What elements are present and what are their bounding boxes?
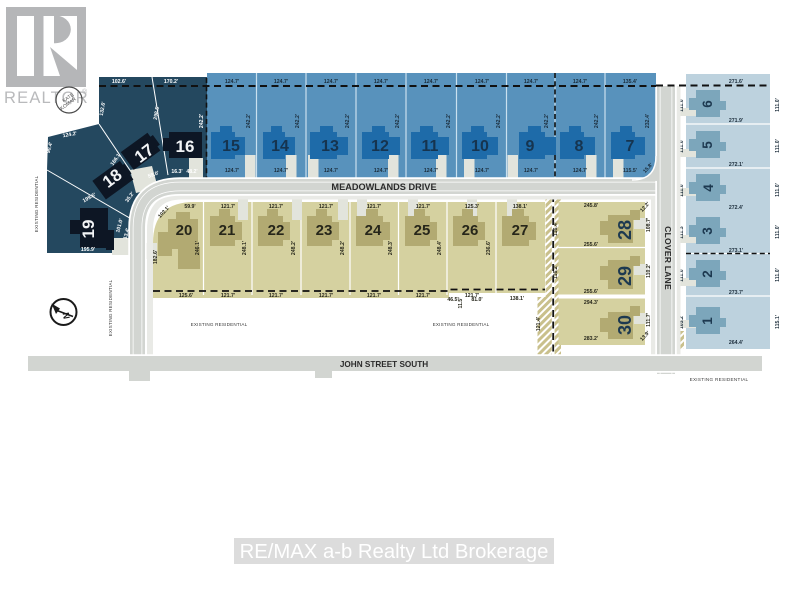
svg-text:116.4': 116.4' [553, 222, 559, 236]
svg-text:20: 20 [176, 222, 193, 239]
svg-text:124.7': 124.7' [274, 168, 288, 174]
svg-text:11: 11 [422, 138, 439, 155]
svg-text:124.7': 124.7' [475, 79, 489, 85]
svg-text:242.2': 242.2' [594, 114, 600, 128]
svg-text:CLOVER LANE: CLOVER LANE [663, 226, 673, 290]
svg-text:246.1': 246.1' [195, 241, 201, 255]
svg-text:264.4': 264.4' [729, 340, 743, 346]
svg-text:26: 26 [462, 222, 479, 239]
svg-text:28: 28 [615, 220, 635, 240]
svg-text:10: 10 [471, 138, 489, 155]
svg-text:242.2': 242.2' [446, 114, 452, 128]
svg-text:23: 23 [316, 222, 333, 239]
svg-text:12: 12 [371, 138, 389, 155]
svg-text:124.7': 124.7' [524, 168, 538, 174]
svg-text:11.5': 11.5' [458, 297, 464, 308]
svg-text:EXISTING RESIDENTIAL: EXISTING RESIDENTIAL [433, 322, 490, 327]
svg-text:EXISTING RESIDENTIAL: EXISTING RESIDENTIAL [108, 279, 113, 336]
svg-text:124.7': 124.7' [225, 168, 239, 174]
svg-text:24: 24 [365, 222, 382, 239]
svg-text:272.4': 272.4' [729, 205, 743, 211]
svg-text:124.7': 124.7' [524, 79, 538, 85]
svg-text:121.7': 121.7' [319, 293, 333, 299]
svg-text:JOHN STREET SOUTH: JOHN STREET SOUTH [340, 360, 428, 369]
svg-text:111.0': 111.0' [775, 183, 781, 197]
svg-text:46.5': 46.5' [447, 297, 458, 303]
svg-text:121.7': 121.7' [221, 204, 235, 210]
svg-text:248.4': 248.4' [437, 241, 443, 255]
svg-text:3: 3 [700, 227, 715, 235]
svg-text:19: 19 [79, 220, 98, 239]
svg-text:13: 13 [321, 138, 339, 155]
svg-text:195.9': 195.9' [81, 247, 95, 253]
svg-text:170.2': 170.2' [164, 79, 178, 85]
svg-text:EXISTING RESIDENTIAL: EXISTING RESIDENTIAL [191, 322, 248, 327]
svg-text:2: 2 [700, 270, 715, 278]
svg-text:124.7': 124.7' [475, 168, 489, 174]
svg-text:MEADOWLANDS DRIVE: MEADOWLANDS DRIVE [331, 182, 436, 192]
svg-text:124.7': 124.7' [424, 168, 438, 174]
svg-text:125.6': 125.6' [179, 293, 193, 299]
svg-text:124.7': 124.7' [374, 168, 388, 174]
svg-text:4: 4 [701, 184, 716, 192]
svg-text:242.2': 242.2' [345, 114, 351, 128]
svg-text:242.2': 242.2' [395, 114, 401, 128]
svg-text:27: 27 [512, 222, 529, 239]
svg-text:124.7': 124.7' [324, 79, 338, 85]
svg-text:121.7': 121.7' [269, 293, 283, 299]
svg-text:255.6': 255.6' [584, 242, 598, 248]
svg-text:242.2': 242.2' [496, 114, 502, 128]
svg-text:242.2': 242.2' [295, 114, 301, 128]
svg-text:135.4': 135.4' [623, 79, 637, 85]
svg-text:124.7': 124.7' [573, 168, 587, 174]
svg-text:111.0': 111.0' [775, 225, 781, 239]
svg-text:30: 30 [615, 315, 635, 335]
svg-text:7: 7 [626, 138, 635, 155]
svg-text:48.2': 48.2' [186, 169, 197, 175]
svg-text:22: 22 [268, 222, 285, 239]
svg-text:14: 14 [271, 138, 289, 155]
svg-text:271.6': 271.6' [729, 79, 743, 85]
svg-text:21: 21 [219, 222, 236, 239]
svg-text:59.9': 59.9' [184, 204, 195, 210]
svg-text:124.7': 124.7' [324, 168, 338, 174]
svg-text:271.9': 271.9' [729, 118, 743, 124]
svg-text:248.1': 248.1' [242, 241, 248, 255]
svg-text:125.3': 125.3' [465, 204, 479, 210]
svg-text:16.3': 16.3' [171, 169, 182, 175]
svg-text:138.1': 138.1' [510, 296, 524, 302]
svg-text:273.7': 273.7' [729, 290, 743, 296]
svg-text:232.4': 232.4' [645, 114, 651, 128]
svg-text:248.2': 248.2' [291, 241, 297, 255]
svg-text:121.7': 121.7' [319, 204, 333, 210]
svg-text:121.7': 121.7' [221, 293, 235, 299]
svg-text:121.7': 121.7' [269, 204, 283, 210]
svg-text:245.8': 245.8' [584, 203, 598, 209]
svg-text:248.2': 248.2' [340, 241, 346, 255]
svg-text:242.2': 242.2' [246, 114, 252, 128]
svg-text:294.3': 294.3' [584, 300, 598, 306]
svg-text:242.2': 242.2' [544, 114, 550, 128]
svg-text:223.0': 223.0' [26, 206, 32, 220]
svg-text:111.0': 111.0' [775, 268, 781, 282]
svg-text:29: 29 [615, 266, 635, 286]
svg-text:8: 8 [575, 138, 584, 155]
svg-text:248.3': 248.3' [388, 241, 394, 255]
svg-text:1: 1 [700, 317, 715, 325]
svg-text:®: ® [82, 88, 88, 96]
svg-text:5: 5 [700, 141, 715, 149]
svg-text:121.4': 121.4' [536, 317, 542, 331]
svg-text:236.6': 236.6' [486, 241, 492, 255]
svg-text:6: 6 [700, 100, 715, 108]
svg-text:182.6': 182.6' [153, 250, 159, 264]
svg-text:25: 25 [414, 222, 431, 239]
svg-text:REALTOR: REALTOR [4, 89, 89, 107]
svg-text:272.1': 272.1' [729, 162, 743, 168]
svg-text:9: 9 [526, 138, 535, 155]
svg-text:124.7': 124.7' [225, 79, 239, 85]
svg-text:242.2': 242.2' [199, 114, 205, 128]
svg-text:EXISTING RESIDENTIAL: EXISTING RESIDENTIAL [34, 175, 39, 232]
svg-text:124.7': 124.7' [274, 79, 288, 85]
svg-text:115.5': 115.5' [623, 168, 637, 174]
svg-text:111.0': 111.0' [775, 98, 781, 112]
svg-text:81.0': 81.0' [471, 297, 482, 303]
svg-text:121.7': 121.7' [367, 293, 381, 299]
svg-text:283.2': 283.2' [584, 336, 598, 342]
svg-text:124.7': 124.7' [374, 79, 388, 85]
svg-text:16: 16 [176, 137, 195, 156]
svg-text:EXISTING RESIDENTIAL: EXISTING RESIDENTIAL [690, 377, 749, 382]
svg-text:116.2': 116.2' [553, 265, 559, 279]
svg-text:255.6': 255.6' [584, 289, 598, 295]
svg-text:111.0': 111.0' [775, 139, 781, 153]
svg-text:138.1': 138.1' [513, 204, 527, 210]
svg-text:115.1': 115.1' [775, 315, 781, 329]
svg-text:124.7': 124.7' [424, 79, 438, 85]
svg-text:102.6': 102.6' [112, 79, 126, 85]
svg-text:121.7': 121.7' [416, 293, 430, 299]
svg-text:121.7': 121.7' [416, 204, 430, 210]
svg-text:15: 15 [222, 138, 240, 155]
svg-text:RE/MAX a-b Realty Ltd Brokerag: RE/MAX a-b Realty Ltd Brokerage [240, 541, 549, 563]
svg-text:121.7': 121.7' [367, 204, 381, 210]
svg-text:124.7': 124.7' [573, 79, 587, 85]
